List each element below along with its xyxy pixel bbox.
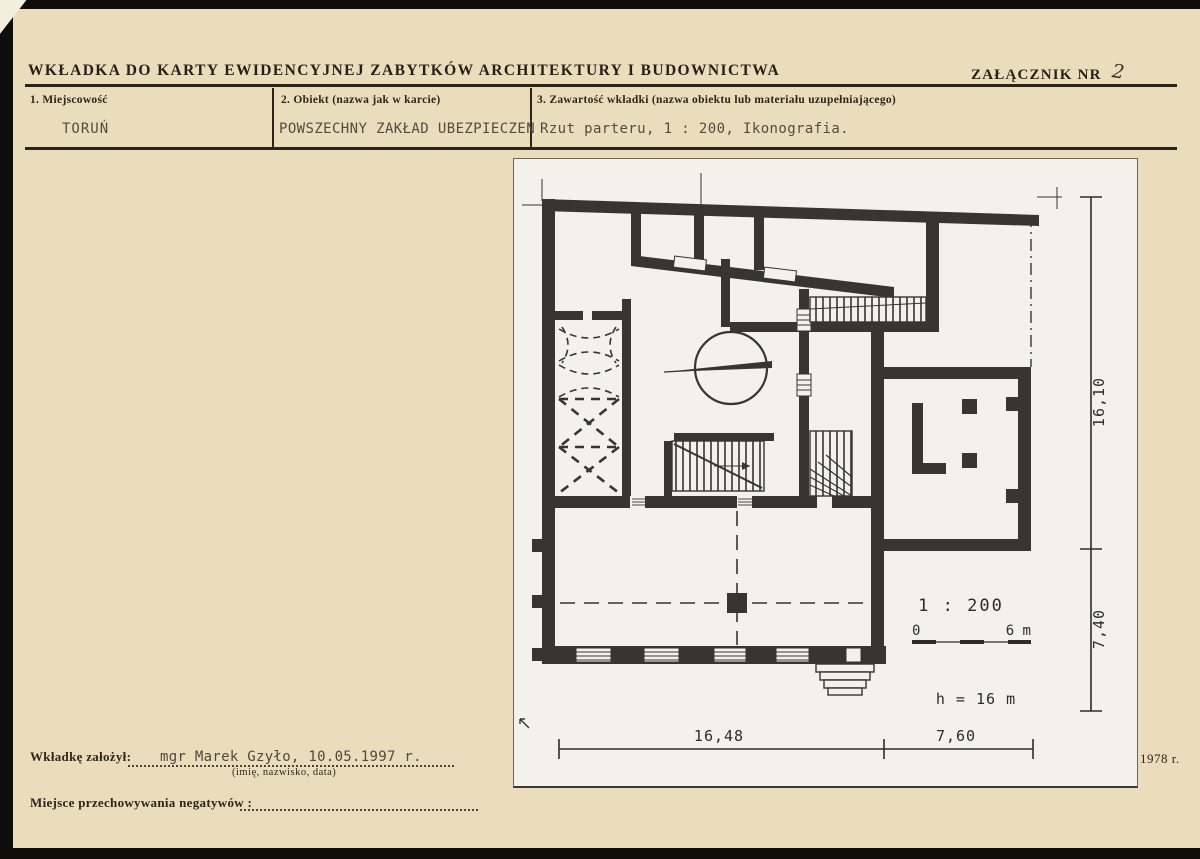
field-city-value: TORUŃ [62, 121, 109, 137]
field-object-label: 2. Obiekt (nazwa jak w karcie) [281, 94, 441, 106]
scan-edge-left [0, 0, 13, 859]
scanned-card-paper: WKŁADKA DO KARTY EWIDENCYJNEJ ZABYTKÓW A… [0, 0, 1200, 859]
scale-zero-label: 0 [912, 623, 920, 639]
scale-bar [912, 640, 1031, 644]
stair-top-right [810, 297, 926, 322]
founder-value: mgr Marek Gzyło, 10.05.1997 r. [160, 749, 422, 765]
founder-hint: (imię, nazwisko, data) [232, 767, 336, 778]
negatives-label: Miejsce przechowywania negatywów : [30, 795, 252, 811]
floor-plan-drawing: 16,10 7,40 16,48 7,60 1 : 200 0 6 m h = … [514, 159, 1137, 786]
field-content-label: 3. Zawartość wkładki (nazwa obiektu lub … [537, 94, 896, 106]
south-facade [542, 646, 886, 695]
north-arrow-icon [664, 332, 772, 404]
field-city-label: 1. Miejscowość [30, 94, 108, 106]
field-object-value: POWSZECHNY ZAKŁAD UBEZPIECZEŃ [279, 121, 535, 137]
beam-axes [560, 511, 868, 645]
dim-bottom-left-label: 16,48 [694, 727, 744, 745]
dim-right-upper-label: 16,10 [1090, 377, 1108, 427]
negatives-dotted-line [240, 808, 478, 811]
scale-ratio-label: 1 : 200 [918, 596, 1004, 616]
reference-lines [520, 173, 1062, 728]
stair-winder [810, 431, 852, 496]
table-bottom-rule [25, 147, 1177, 150]
vault-dashes [559, 327, 619, 493]
attachment-caption: ZAŁĄCZNIK NR2 [971, 62, 1125, 84]
column-divider-1 [272, 88, 274, 147]
column-divider-2 [530, 88, 532, 147]
dim-bottom-right-label: 7,60 [936, 727, 976, 745]
year-note: 1978 r. [1140, 751, 1180, 767]
dim-right-lower-label: 7,40 [1090, 609, 1108, 649]
card-title: WKŁADKA DO KARTY EWIDENCYJNEJ ZABYTKÓW A… [28, 62, 780, 80]
scale-six-label: 6 m [1006, 623, 1031, 639]
attachment-label: ZAŁĄCZNIK NR [971, 67, 1102, 83]
attachment-number-handwritten: 2 [1110, 60, 1126, 84]
floor-plan-print: 16,10 7,40 16,48 7,60 1 : 200 0 6 m h = … [513, 158, 1138, 788]
scan-edge-top [0, 0, 1200, 9]
entrance-steps [816, 664, 874, 695]
founder-label: Wkładkę założył: [30, 749, 131, 765]
field-content-value: Rzut parteru, 1 : 200, Ikonografia. [540, 121, 849, 137]
scan-edge-bottom [0, 848, 1200, 859]
height-note-label: h = 16 m [936, 690, 1016, 708]
outer-walls [532, 199, 1039, 664]
header-rule [25, 84, 1177, 87]
stair-main [672, 441, 764, 491]
